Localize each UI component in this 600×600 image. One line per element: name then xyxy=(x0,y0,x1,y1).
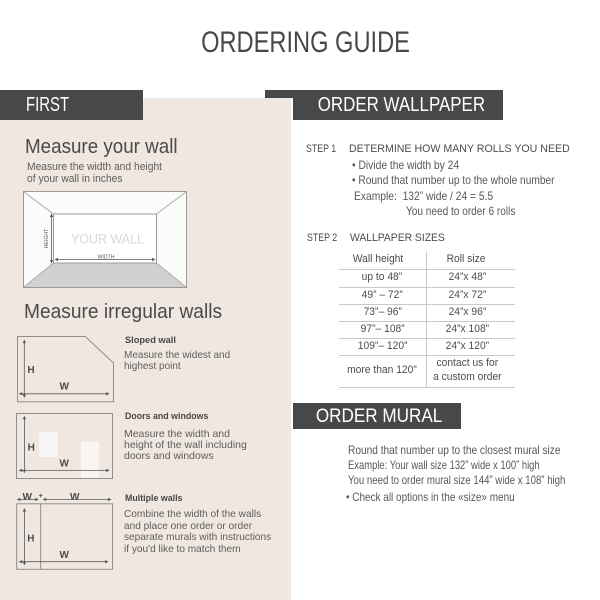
svg-text:WIDTH: WIDTH xyxy=(98,255,115,261)
svg-text:H: H xyxy=(28,442,35,453)
svg-text:W: W xyxy=(60,550,70,561)
svg-text:H: H xyxy=(27,365,34,376)
svg-text:W: W xyxy=(70,492,80,503)
svg-text:YOUR WALL: YOUR WALL xyxy=(71,231,144,246)
svg-text:+: + xyxy=(39,491,44,500)
svg-text:W: W xyxy=(60,459,70,470)
svg-text:HEIGHT: HEIGHT xyxy=(44,228,50,248)
svg-text:H: H xyxy=(27,534,34,545)
svg-text:W: W xyxy=(60,382,70,393)
svg-text:W: W xyxy=(22,492,32,503)
